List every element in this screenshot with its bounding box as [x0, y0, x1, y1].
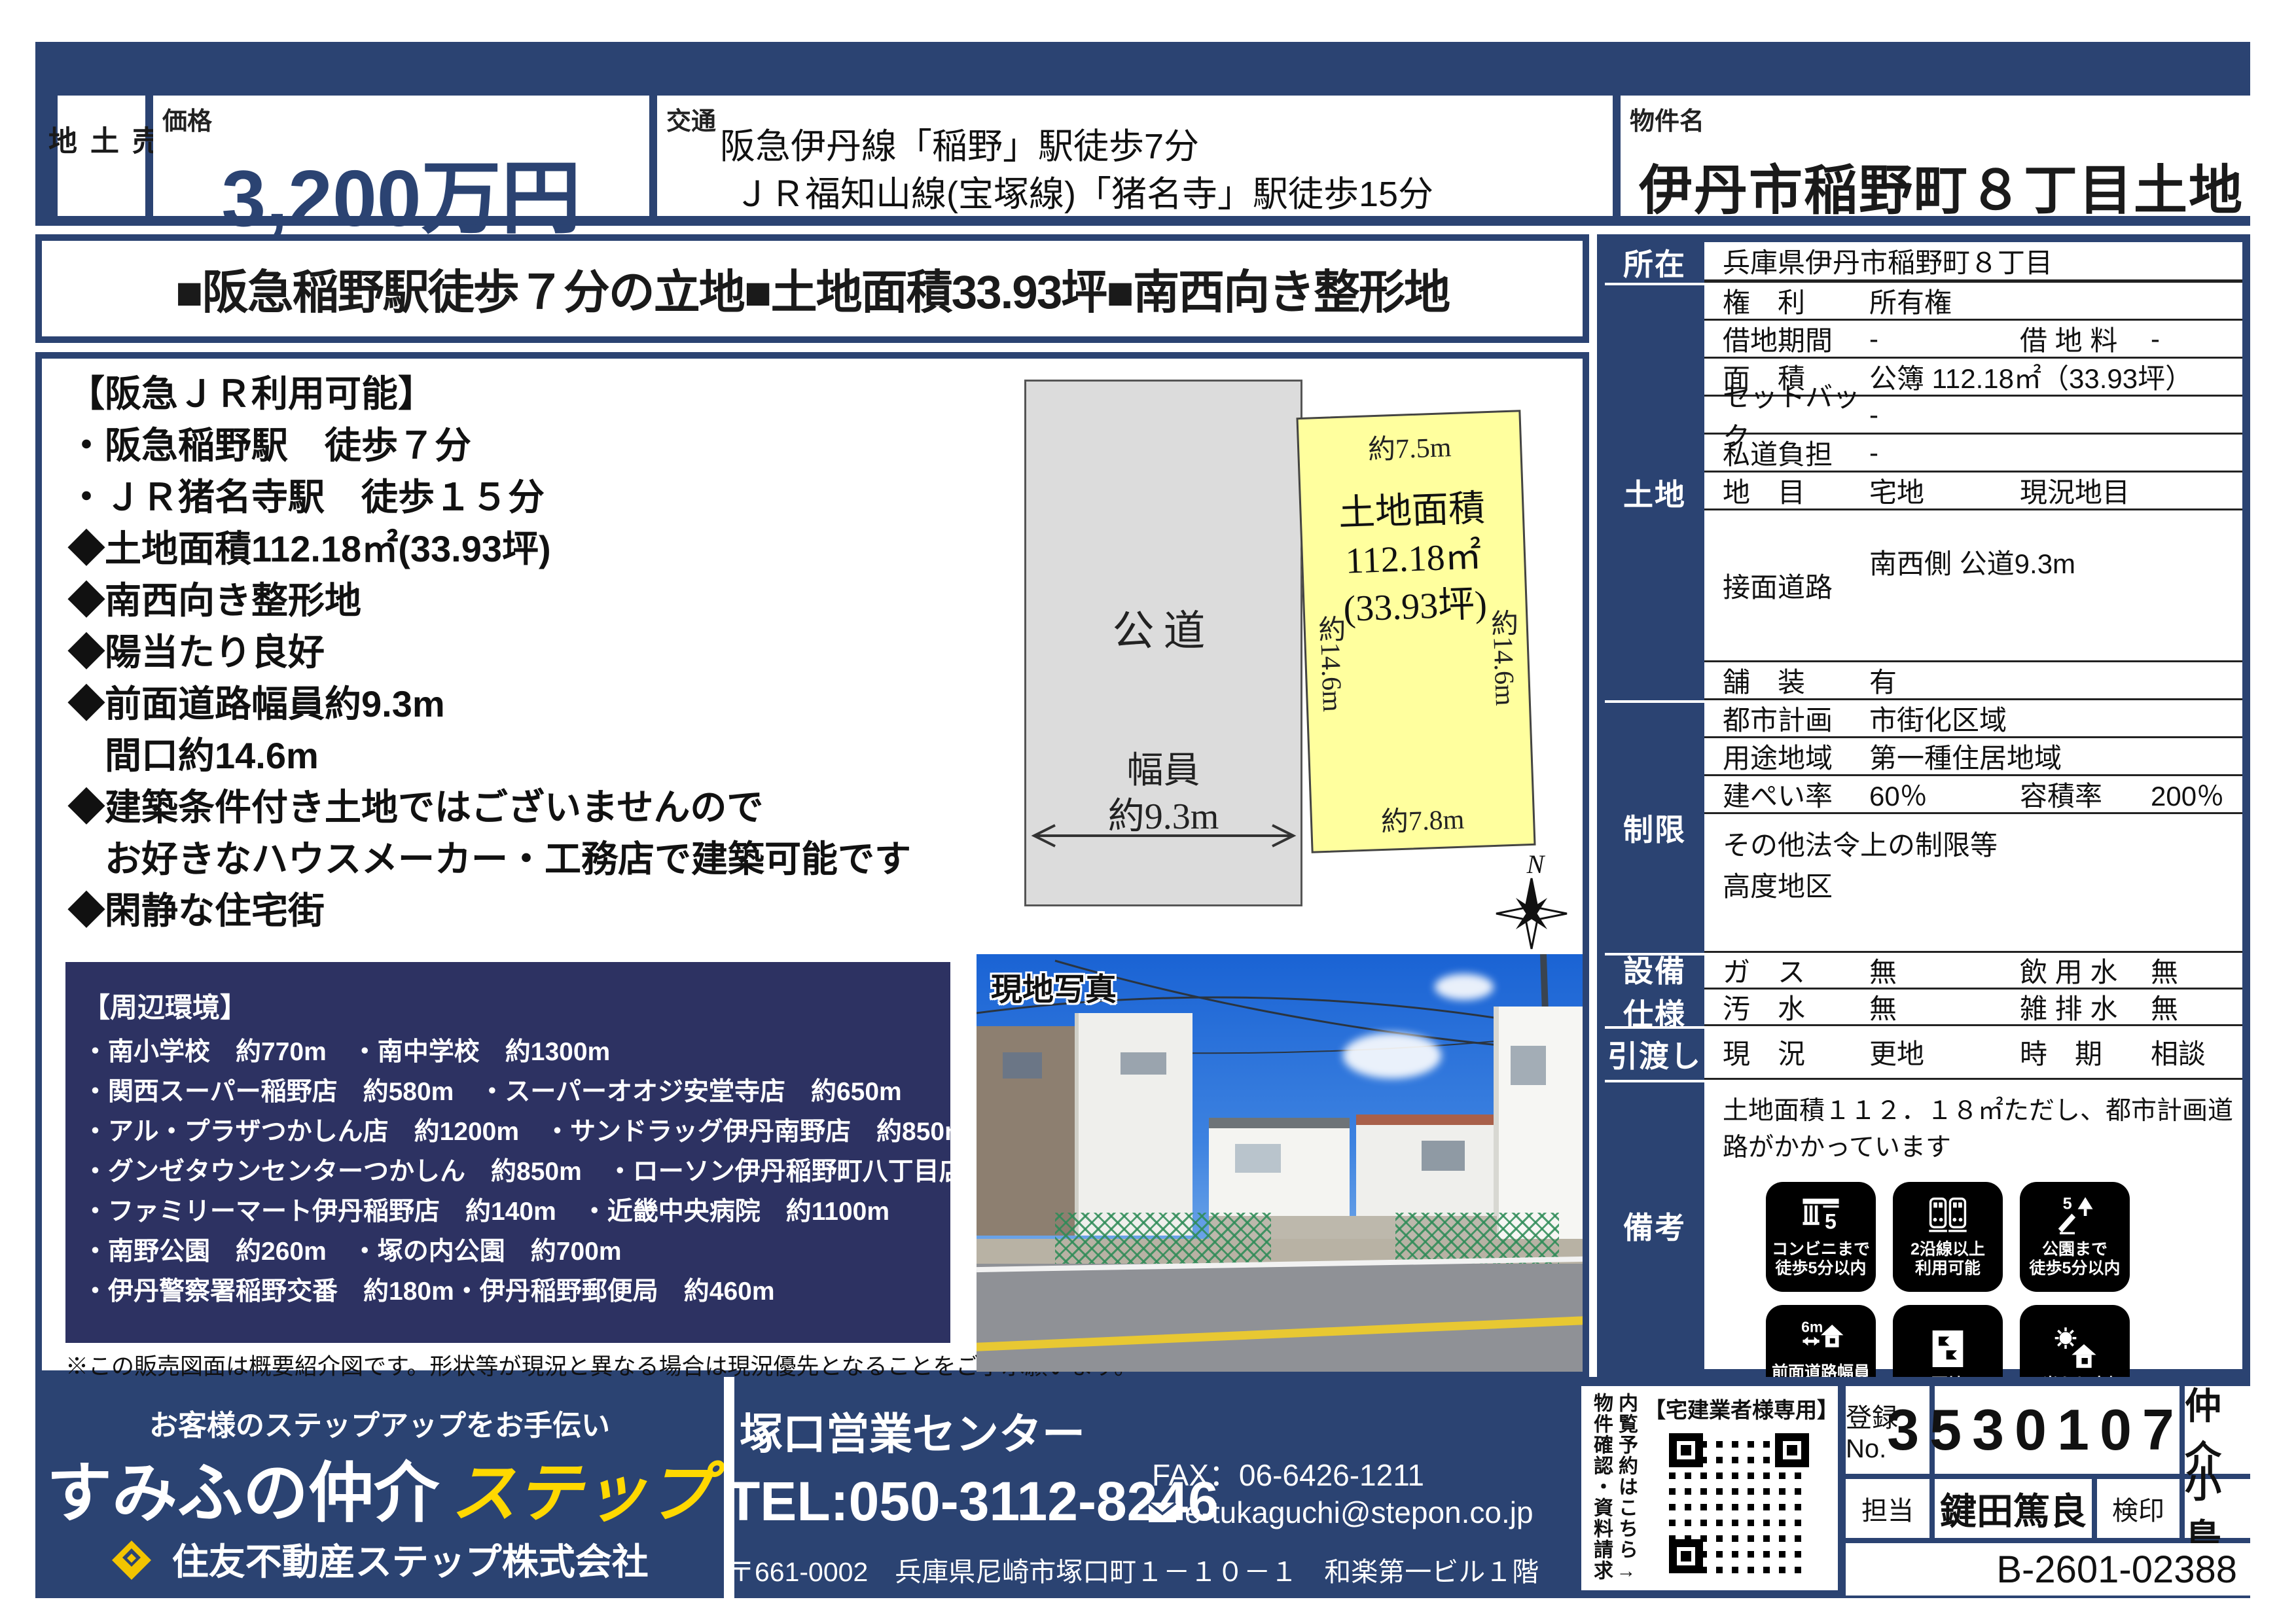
surroundings-line: ・アル・プラザつかしん店 約1200m ・サンドラッグ伊丹南野店 約850m: [82, 1112, 950, 1152]
plot-left-dimension: 約14.6m: [1309, 615, 1352, 713]
surroundings-title: 【周辺環境】: [82, 986, 950, 1026]
envelope-icon: [1148, 1502, 1177, 1523]
road-label: 公道: [1026, 597, 1300, 658]
doc-no-cell: B-2601-02388: [1846, 1543, 2250, 1596]
plot-area-line2: 112.18㎡: [1302, 531, 1524, 587]
section-label-text: 仕様: [1623, 991, 1686, 1034]
section-label-text: 制限: [1623, 806, 1686, 849]
badge-caption: 公園まで: [2042, 1240, 2108, 1259]
remarks-text: 土地面積１１２．１８㎡ただし、都市計画道路がかかっています: [1723, 1090, 2242, 1164]
row-rights: 権 利 所有権: [1704, 283, 2242, 321]
footer-band: お客様のステップアップをお手伝い すみふの仲介ステップ 住友不動産ステップ株式会…: [35, 1377, 2250, 1598]
road-width-word: 幅員: [1026, 748, 1300, 794]
price-box: 価格 3,200万円: [153, 96, 649, 216]
other-restrictions-line1: その他法令上の制限等: [1723, 825, 1998, 866]
surroundings-line: ・南野公園 約260m ・塚の内公園 約700m: [82, 1232, 950, 1272]
asphalt-road: [977, 1264, 1583, 1372]
window: [1235, 1144, 1281, 1173]
feature-line: ◆南西向き整形地: [68, 575, 1004, 626]
qr-code: [1662, 1427, 1816, 1580]
window: [1121, 1052, 1166, 1075]
plot-bottom-dimension: 約7.8m: [1380, 797, 1465, 840]
road-width-icon: 6m: [1798, 1319, 1844, 1359]
row-key2: 容積率: [2020, 774, 2151, 814]
row-value2: 無: [2151, 950, 2242, 990]
qr-box: 内覧予約はこちら→ 物件確認・資料請求 【宅建業者様専用】: [1581, 1386, 1838, 1590]
other-restrictions-line2: 高度地区: [1723, 866, 1998, 907]
row-key: 借地期間: [1723, 319, 1869, 359]
badge-park: 5 公園まで 徒歩5分以内: [2020, 1182, 2130, 1292]
qr-finder: [1775, 1433, 1809, 1467]
public-road-shape: 公道 幅員 約9.3m: [1024, 380, 1302, 906]
row-key: 権 利: [1723, 281, 1869, 321]
property-name-value: 伊丹市稲野町８丁目土地: [1639, 147, 2244, 224]
company-name: 住友不動産ステップ株式会社: [172, 1541, 649, 1582]
section-label-location: 所在: [1605, 242, 1704, 283]
feature-line: ・ＪＲ猪名寺駅 徒歩１５分: [68, 471, 1004, 523]
access-line-1: 阪急伊丹線「稲野」駅徒歩7分: [720, 123, 1433, 171]
feature-line: ◆陽当たり良好: [68, 626, 1004, 678]
row-value2: 無: [2151, 987, 2242, 1027]
top-band: 売土地 価格 3,200万円 交通 阪急伊丹線「稲野」駅徒歩7分 ＪＲ福知山線(…: [35, 42, 2250, 226]
row-value: -: [1869, 437, 2242, 469]
row-key2: 雑 排 水: [2020, 987, 2151, 1027]
tanto-label-cell: 担当: [1846, 1479, 1929, 1538]
qr-finder: [1669, 1433, 1703, 1467]
section-label-text: 引渡し: [1607, 1033, 1702, 1076]
access-label: 交通: [666, 101, 716, 137]
row-sewage: 汚 水 無 雑 排 水 無: [1704, 990, 2242, 1026]
row-key: 建ぺい率: [1723, 774, 1869, 814]
price-label: 価格: [162, 101, 212, 137]
tanto-label: 担当: [1861, 1489, 1914, 1527]
section-label-text: 設備: [1623, 948, 1686, 991]
row-coverage: 建ぺい率 60％ 容積率 200％: [1704, 776, 2242, 814]
surroundings-line: ・ファミリーマート伊丹稲野店 約140m ・近畿中央病院 約1100m: [82, 1192, 950, 1232]
badge-caption: 利用可能: [1915, 1259, 1981, 1278]
qr-finder: [1669, 1539, 1703, 1573]
photo-label: 現地写真: [991, 963, 1117, 1009]
row-gas: ガ ス 無 飲 用 水 無: [1704, 953, 2242, 990]
badge-caption: 徒歩5分以内: [1776, 1259, 1867, 1278]
sunny-icon: [2052, 1326, 2098, 1372]
kenin-cell: 小島: [2185, 1479, 2250, 1538]
row-key: 接面道路: [1723, 565, 1869, 605]
access-line-2: ＪＲ福知山線(宝塚線)「猪名寺」駅徒歩15分: [734, 171, 1433, 219]
sumitomo-logo-icon: [111, 1539, 152, 1581]
main-left-panel: 【阪急ＪＲ利用可能】 ・阪急稲野駅 徒歩７分 ・ＪＲ猪名寺駅 徒歩１５分 ◆土地…: [35, 352, 1589, 1377]
office-email-line: e-tukaguchi@stepon.co.jp: [1148, 1495, 1534, 1530]
row-value: 宅地: [1869, 471, 2020, 510]
flyer-page: 売土地 価格 3,200万円 交通 阪急伊丹線「稲野」駅徒歩7分 ＪＲ福知山線(…: [0, 0, 2296, 1623]
row-lease: 借地期間 - 借 地 料 -: [1704, 321, 2242, 359]
plot-right-dimension: 約14.6m: [1482, 608, 1525, 706]
kenin-label: 検印: [2112, 1489, 2164, 1527]
section-label-land: 土地: [1605, 285, 1704, 700]
property-name-label: 物件名: [1630, 101, 1704, 137]
train-lines-icon: [1925, 1196, 1971, 1236]
vacant-land-icon: [1925, 1326, 1971, 1372]
row-key: 舗 装: [1723, 660, 1869, 700]
other-restrictions: その他法令上の制限等 高度地区: [1723, 822, 1998, 907]
details-panel: 所在 土地 制限 設備 仕様 引渡し 備考 兵庫県伊丹市稲野町８丁目 権 利 所…: [1597, 234, 2250, 1377]
feature-line: 【阪急ＪＲ利用可能】: [68, 368, 1004, 419]
price-value: 3,200万円: [153, 134, 649, 249]
row-key: 都市計画: [1723, 698, 1869, 738]
doc-no: B-2601-02388: [1996, 1548, 2237, 1592]
surroundings-line: ・伊丹警察署稲野交番 約180m・伊丹稲野郵便局 約460m: [82, 1272, 950, 1311]
surroundings-line: ・グンゼタウンセンターつかしん 約850m ・ローソン伊丹稲野町八丁目店 約11…: [82, 1152, 950, 1192]
svg-text:5: 5: [2063, 1196, 2072, 1213]
brand-accent: ステップ: [451, 1457, 713, 1530]
qr-side-text-1: 内覧予約はこちら→: [1611, 1393, 1640, 1584]
compass-icon: N: [1486, 851, 1577, 955]
mesh-fence: [1055, 1213, 1271, 1265]
qr-side-text-2: 物件確認・資料請求: [1587, 1393, 1615, 1584]
reg-no-cell: 35301070: [1935, 1386, 2179, 1474]
row-current-state: 現 況 更地 時 期 相談: [1704, 1026, 2242, 1080]
window: [1511, 1046, 1546, 1085]
kenin-label-cell: 検印: [2097, 1479, 2179, 1538]
plot-top-dimension: 約7.5m: [1367, 425, 1452, 467]
sale-type-box: 売土地: [58, 96, 145, 216]
row-other-restrictions: その他法令上の制限等 高度地区: [1704, 814, 2242, 953]
row-category: 地 目 宅地 現況地目: [1704, 473, 2242, 510]
sale-type-label: 売土地: [39, 126, 164, 186]
row-pavement: 舗 装 有: [1704, 662, 2242, 700]
site-photo: 現地写真: [977, 954, 1583, 1372]
section-label-handover: 引渡し: [1605, 1029, 1704, 1080]
row-value2: -: [2151, 323, 2242, 355]
section-label-remarks: 備考: [1605, 1082, 1704, 1369]
row-value: 市街化区域: [1869, 698, 2242, 738]
row-frontage: 接面道路 南西側 公道9.3m: [1704, 510, 2242, 662]
cloud: [1343, 1033, 1441, 1079]
row-key2: 飲 用 水: [2020, 950, 2151, 990]
surroundings-line: ・南小学校 約770m ・南中学校 約1300m: [82, 1032, 950, 1072]
feature-line: 間口約14.6m: [68, 730, 1004, 781]
row-key: 地 目: [1723, 471, 1869, 510]
row-private-road: 私道負担 -: [1704, 435, 2242, 473]
window: [1422, 1141, 1465, 1171]
row-value: 無: [1869, 987, 2020, 1027]
row-key: 汚 水: [1723, 987, 1869, 1027]
badge-caption: 2沿線以上: [1910, 1240, 1985, 1259]
road-width-arrow-icon: [1029, 823, 1299, 849]
office-address: 〒661-0002 兵庫県尼崎市塚口町１－１０－１ 和楽第一ビル１階: [728, 1550, 1539, 1589]
row-value: -: [1869, 323, 2020, 355]
tanto-cell: 鍵田篤良: [1935, 1479, 2092, 1538]
badge-convenience: 5 コンビニまで 徒歩5分以内: [1766, 1182, 1876, 1292]
surroundings-line: ・関西スーパー稲野店 約580m ・スーパーオオジ安堂寺店 約650m: [82, 1072, 950, 1112]
qr-header: 【宅建業者様専用】: [1644, 1393, 1834, 1424]
row-key: 現 況: [1723, 1032, 1869, 1072]
row-key2: 時 期: [2020, 1032, 2151, 1072]
svg-text:6m: 6m: [1801, 1319, 1823, 1336]
row-value: 公簿 112.18㎡（33.93坪）: [1869, 357, 2242, 397]
svg-text:5: 5: [1825, 1210, 1837, 1234]
row-value: 60％: [1869, 774, 2020, 814]
convenience-store-icon: 5: [1798, 1196, 1844, 1236]
park-icon: 5: [2052, 1196, 2098, 1236]
row-value: 所有権: [1869, 281, 2242, 321]
office-tel: TEL:050-3112-8246: [726, 1470, 1219, 1533]
tanto-name: 鍵田篤良: [1940, 1482, 2087, 1535]
badge-caption: コンビニまで: [1772, 1240, 1870, 1259]
brand-main: すみふの仲介: [46, 1457, 439, 1530]
row-value: 更地: [1869, 1032, 2020, 1072]
feature-line: お好きなハウスメーカー・工務店で建築可能です: [68, 833, 1004, 885]
land-plot-shape: 約7.5m 土地面積 112.18㎡ (33.93坪) 約14.6m 約14.6…: [1296, 410, 1535, 853]
building-left-2: [1075, 1013, 1193, 1236]
row-value2: 相談: [2151, 1032, 2242, 1072]
row-key2: 現況地目: [2020, 471, 2151, 510]
feature-line: ◆建築条件付き土地ではございませんので: [68, 781, 1004, 833]
headline-banner: ■阪急稲野駅徒歩７分の立地■土地面積33.93坪■南西向き整形地: [35, 234, 1589, 343]
office-name: 塚口営業センター: [740, 1399, 1085, 1462]
cloud: [1435, 974, 1494, 1000]
office-email[interactable]: e-tukaguchi@stepon.co.jp: [1185, 1495, 1534, 1530]
feature-line: ◆前面道路幅員約9.3m: [68, 678, 1004, 730]
access-lines: 阪急伊丹線「稲野」駅徒歩7分 ＪＲ福知山線(宝塚線)「猪名寺」駅徒歩15分: [720, 123, 1433, 219]
svg-text:N: N: [1526, 851, 1546, 879]
access-box: 交通 阪急伊丹線「稲野」駅徒歩7分 ＪＲ福知山線(宝塚線)「猪名寺」駅徒歩15分: [657, 96, 1613, 216]
row-key: ガ ス: [1723, 950, 1869, 990]
row-value: 南西側 公道9.3m: [1869, 542, 2242, 582]
section-label-facilities: 設備 仕様: [1605, 955, 1704, 1026]
feature-line: ◆閑静な住宅街: [68, 885, 1004, 936]
section-label-text: 所在: [1623, 241, 1686, 284]
row-setback: セットバック -: [1704, 397, 2242, 435]
feature-list: 【阪急ＪＲ利用可能】 ・阪急稲野駅 徒歩７分 ・ＪＲ猪名寺駅 徒歩１５分 ◆土地…: [68, 368, 1004, 936]
badge-caption: 徒歩5分以内: [2030, 1259, 2121, 1278]
row-key2: 借 地 料: [2020, 319, 2151, 359]
row-key: 私道負担: [1723, 433, 1869, 473]
row-value2: 200％: [2151, 774, 2242, 814]
row-location: 兵庫県伊丹市稲野町８丁目: [1704, 242, 2242, 283]
window: [1003, 1052, 1042, 1079]
row-city-plan: 都市計画 市街化区域: [1704, 700, 2242, 738]
row-value: 第一種住居地域: [1869, 736, 2242, 776]
row-key: 用途地域: [1723, 736, 1869, 776]
section-label-text: 備考: [1623, 1204, 1686, 1247]
building-right: [1494, 1007, 1583, 1242]
row-value: -: [1869, 399, 2242, 431]
property-name-box: 物件名 伊丹市稲野町８丁目土地: [1621, 96, 2250, 216]
plot-area-line1: 土地面積: [1300, 484, 1522, 539]
row-value: 有: [1869, 660, 2242, 700]
headline-text: ■阪急稲野駅徒歩７分の立地■土地面積33.93坪■南西向き整形地: [42, 255, 1583, 322]
surroundings-box: 【周辺環境】 ・南小学校 約770m ・南中学校 約1300m ・関西スーパー稲…: [65, 962, 950, 1343]
row-remarks: 土地面積１１２．１８㎡ただし、都市計画道路がかかっています 5 コンビニまで 徒…: [1704, 1080, 2242, 1369]
row-value: 無: [1869, 950, 2020, 990]
brand-logo: すみふの仲介ステップ: [35, 1440, 724, 1535]
row-zoning: 用途地域 第一種住居地域: [1704, 738, 2242, 776]
section-label-restrictions: 制限: [1605, 703, 1704, 953]
feature-line: ◆土地面積112.18㎡(33.93坪): [68, 523, 1004, 575]
section-label-text: 土地: [1623, 471, 1686, 514]
badge-two-lines: 2沿線以上 利用可能: [1893, 1182, 2003, 1292]
footer-tagline: お客様のステップアップをお手伝い: [35, 1402, 724, 1444]
location-value: 兵庫県伊丹市稲野町８丁目: [1723, 241, 2242, 281]
reg-no: 35301070: [1887, 1397, 2227, 1463]
feature-line: ・阪急稲野駅 徒歩７分: [68, 419, 1004, 471]
office-fax: FAX：06-6426-1211: [1152, 1452, 1424, 1495]
qr-pattern: [1669, 1433, 1809, 1573]
company-line: 住友不動産ステップ株式会社: [35, 1533, 724, 1586]
